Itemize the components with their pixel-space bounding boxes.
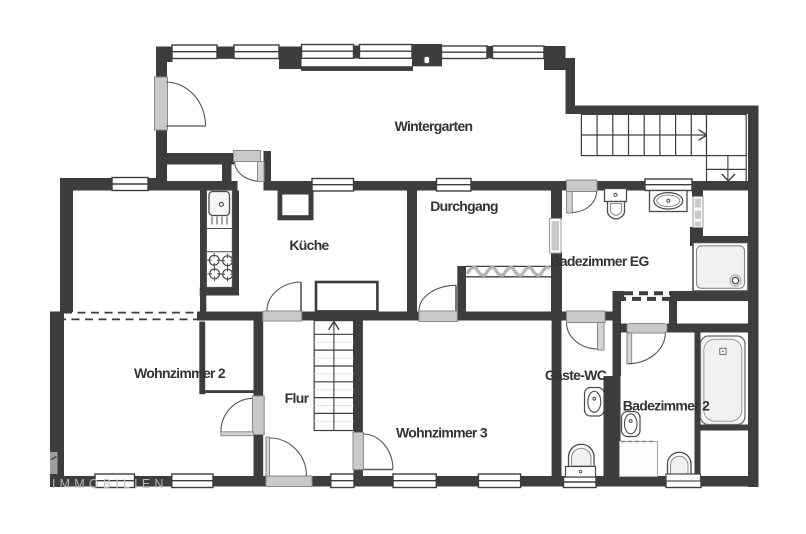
svg-text:Badezimmer 2: Badezimmer 2 bbox=[623, 398, 710, 414]
svg-text:Küche: Küche bbox=[289, 237, 329, 253]
svg-text:Wohnzimmer 2: Wohnzimmer 2 bbox=[134, 365, 226, 381]
svg-text:Wohnzimmer 3: Wohnzimmer 3 bbox=[396, 425, 488, 441]
svg-text:Durchgang: Durchgang bbox=[430, 198, 498, 214]
svg-text:IMMOBILIEN: IMMOBILIEN bbox=[52, 477, 168, 491]
svg-text:Wintergarten: Wintergarten bbox=[395, 118, 473, 134]
svg-text:Gäste-WC: Gäste-WC bbox=[545, 367, 607, 383]
svg-text:Flur: Flur bbox=[285, 390, 310, 406]
svg-text:Badezimmer EG: Badezimmer EG bbox=[550, 253, 649, 269]
